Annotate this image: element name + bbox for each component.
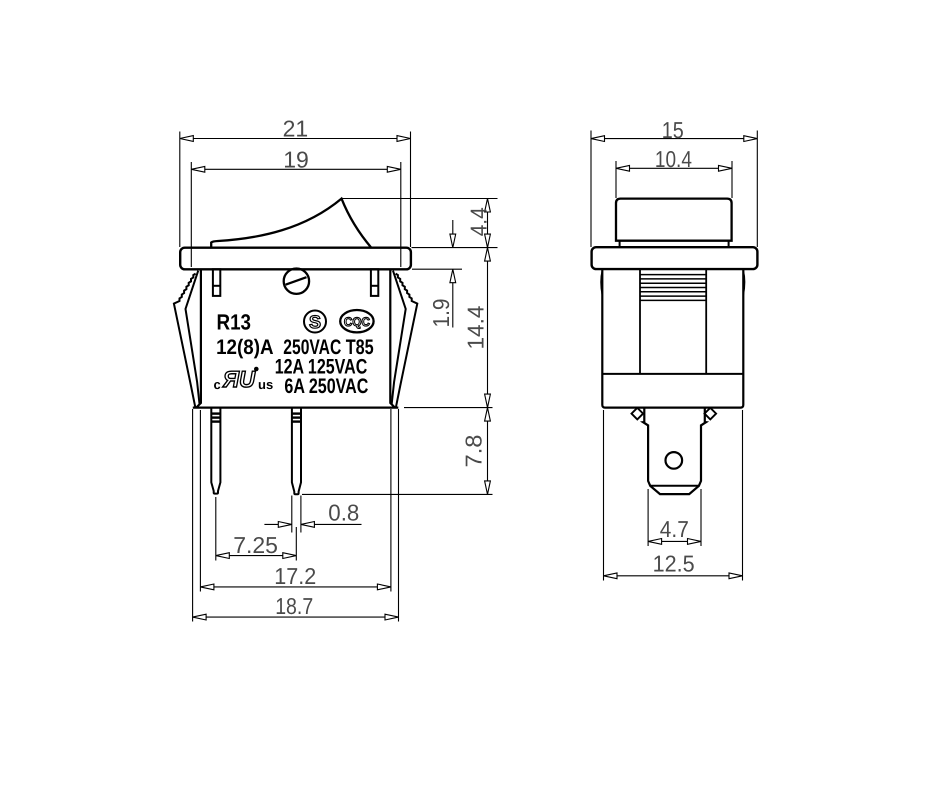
svg-text:R13: R13 [217, 310, 252, 335]
svg-text:17.2: 17.2 [274, 563, 316, 589]
svg-text:7.8: 7.8 [461, 435, 487, 468]
svg-text:15: 15 [662, 117, 684, 143]
svg-text:7.25: 7.25 [233, 532, 278, 558]
svg-text:6A 250VAC: 6A 250VAC [284, 375, 368, 398]
svg-text:12(8)A: 12(8)A [216, 336, 274, 359]
svg-text:4.4: 4.4 [466, 207, 492, 236]
svg-text:0.8: 0.8 [328, 499, 359, 525]
svg-text:us: us [258, 377, 273, 392]
svg-text:CQC: CQC [344, 315, 370, 329]
svg-text:1.9: 1.9 [428, 299, 454, 328]
svg-text:18.7: 18.7 [275, 593, 313, 619]
svg-text:21: 21 [283, 116, 309, 142]
svg-text:ЯU: ЯU [222, 366, 256, 392]
svg-text:4.7: 4.7 [660, 516, 689, 542]
svg-text:S: S [309, 312, 321, 332]
svg-text:10.4: 10.4 [655, 146, 692, 172]
svg-text:12.5: 12.5 [653, 550, 695, 576]
svg-text:14.4: 14.4 [463, 305, 489, 349]
svg-text:c: c [214, 377, 221, 392]
svg-text:19: 19 [283, 147, 309, 173]
